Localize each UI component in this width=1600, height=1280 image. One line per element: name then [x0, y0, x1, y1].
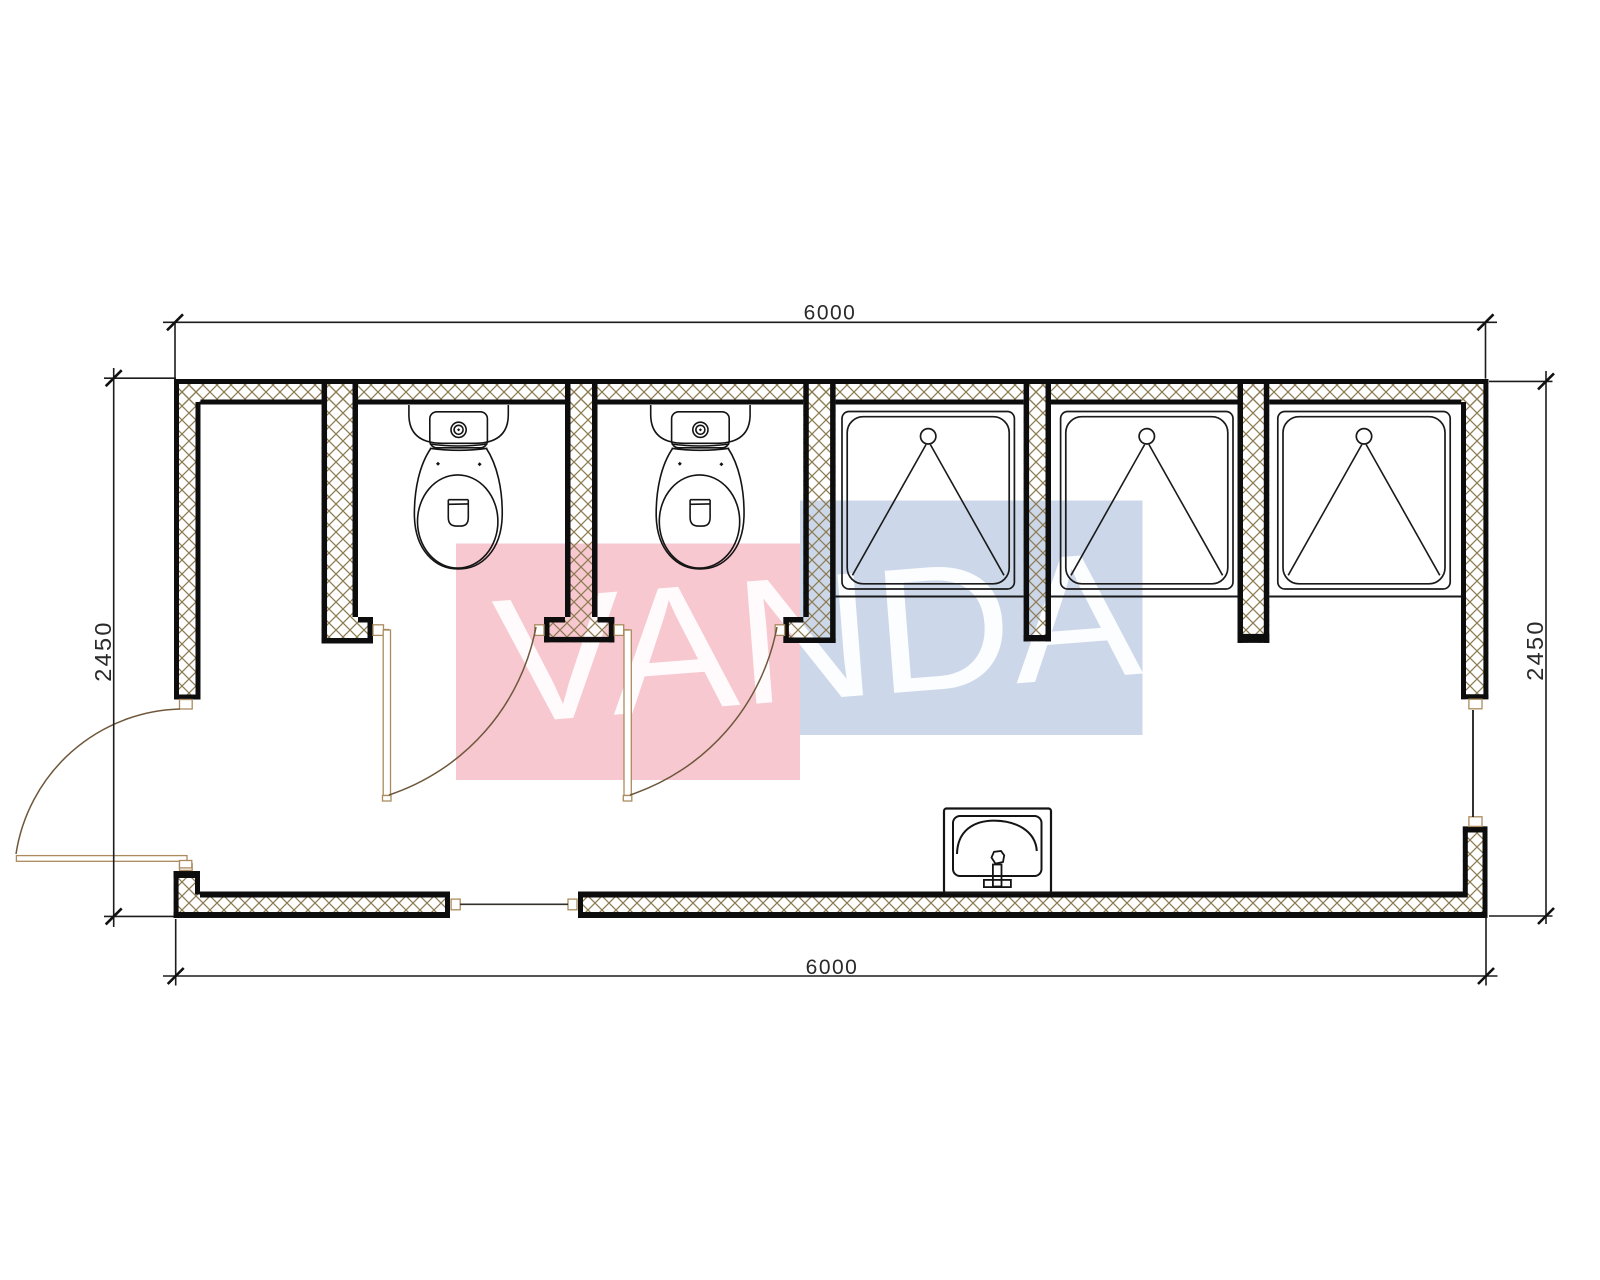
svg-text:2450: 2450: [90, 620, 116, 681]
svg-text:6000: 6000: [804, 302, 857, 325]
svg-text:2450: 2450: [1522, 619, 1548, 680]
svg-text:6000: 6000: [806, 956, 859, 979]
